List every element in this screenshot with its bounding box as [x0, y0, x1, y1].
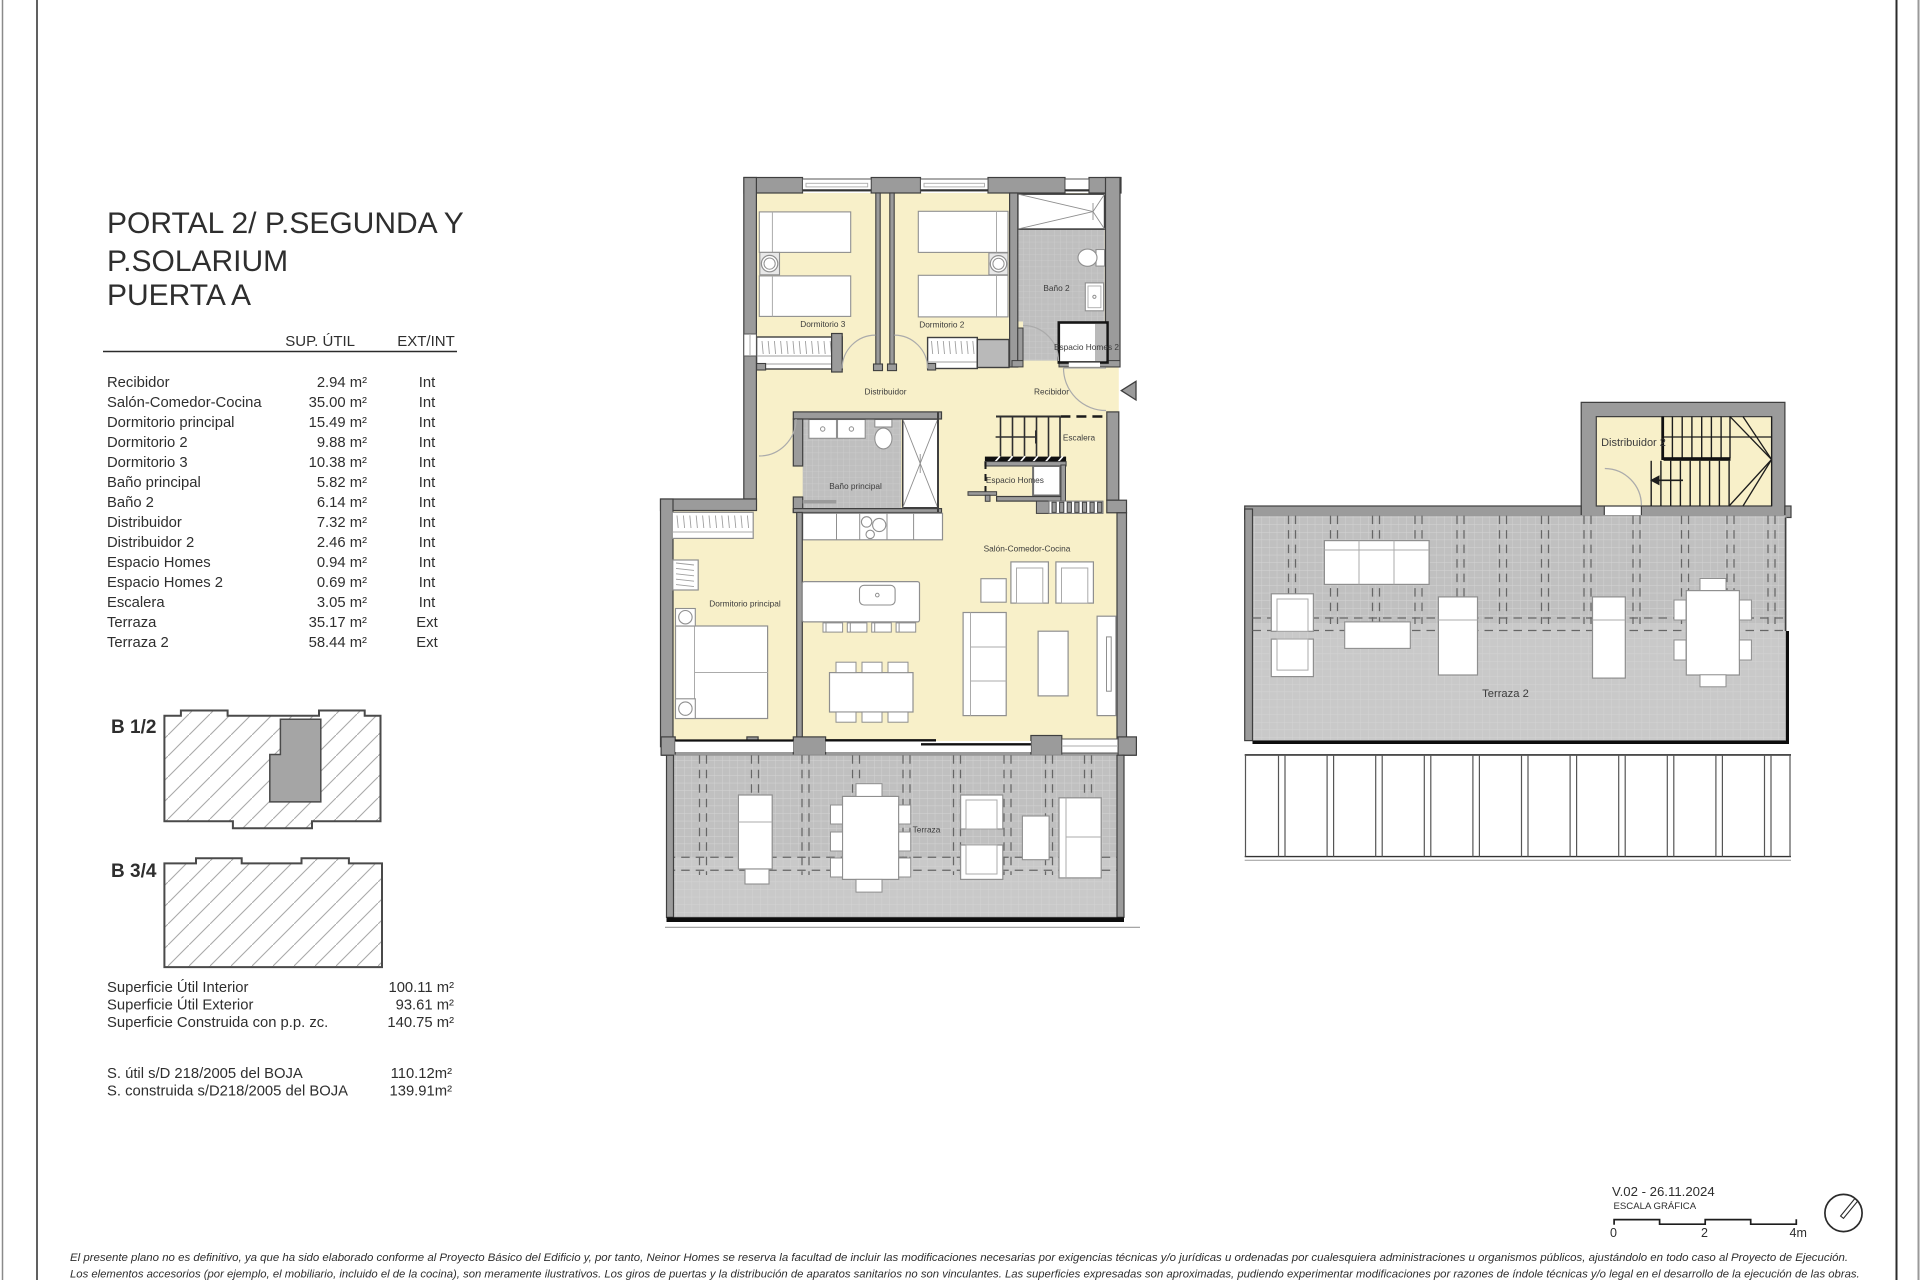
svg-text:Ext: Ext	[416, 615, 437, 631]
svg-text:Distribuidor 2: Distribuidor 2	[107, 535, 194, 551]
svg-text:10.38 m²: 10.38 m²	[309, 455, 367, 471]
svg-text:Escalera: Escalera	[1063, 433, 1096, 443]
svg-text:Int: Int	[419, 435, 435, 451]
svg-text:B 1/2: B 1/2	[111, 717, 156, 738]
svg-text:Salón-Comedor-Cocina: Salón-Comedor-Cocina	[984, 544, 1071, 554]
svg-text:139.91m²: 139.91m²	[389, 1083, 452, 1099]
svg-text:Los elementos accesorios (por: Los elementos accesorios (por ejemplo, e…	[70, 1269, 1860, 1280]
svg-text:100.11 m²: 100.11 m²	[388, 980, 454, 996]
svg-text:Superficie Construida con p.p.: Superficie Construida con p.p. zc.	[107, 1015, 328, 1031]
svg-text:93.61 m²: 93.61 m²	[396, 997, 454, 1013]
svg-text:Superficie Útil Exterior: Superficie Útil Exterior	[107, 996, 253, 1013]
svg-text:Baño principal: Baño principal	[829, 481, 882, 491]
svg-text:S. útil s/D 218/2005 del BOJA: S. útil s/D 218/2005 del BOJA	[107, 1066, 303, 1082]
svg-text:Terraza 2: Terraza 2	[107, 635, 169, 651]
svg-text:Dormitorio 3: Dormitorio 3	[800, 319, 846, 329]
svg-text:Int: Int	[419, 455, 435, 471]
svg-text:0.69 m²: 0.69 m²	[317, 575, 367, 591]
svg-text:Int: Int	[419, 475, 435, 491]
svg-text:Espacio Homes: Espacio Homes	[107, 555, 211, 571]
svg-text:ESCALA GRÁFICA: ESCALA GRÁFICA	[1614, 1201, 1697, 1212]
svg-text:4m: 4m	[1790, 1226, 1807, 1240]
svg-text:3.05 m²: 3.05 m²	[317, 595, 367, 611]
svg-text:Int: Int	[419, 535, 435, 551]
svg-text:Baño principal: Baño principal	[107, 475, 201, 491]
svg-text:S. construida s/D218/2005 del: S. construida s/D218/2005 del BOJA	[107, 1083, 348, 1099]
svg-text:Int: Int	[419, 575, 435, 591]
svg-text:7.32 m²: 7.32 m²	[317, 515, 367, 531]
svg-text:35.17 m²: 35.17 m²	[309, 615, 367, 631]
svg-text:Distribuidor: Distribuidor	[865, 387, 907, 397]
svg-text:110.12m²: 110.12m²	[391, 1066, 452, 1082]
svg-text:Int: Int	[419, 395, 435, 411]
svg-text:Int: Int	[419, 415, 435, 431]
svg-text:Dormitorio 2: Dormitorio 2	[107, 435, 188, 451]
svg-text:V.02 - 26.11.2024: V.02 - 26.11.2024	[1612, 1184, 1715, 1199]
svg-text:Dormitorio 2: Dormitorio 2	[919, 320, 965, 330]
svg-text:P.SOLARIUM: P.SOLARIUM	[107, 245, 288, 278]
svg-text:EXT/INT: EXT/INT	[397, 333, 455, 350]
svg-text:PORTAL 2/ P.SEGUNDA Y: PORTAL 2/ P.SEGUNDA Y	[107, 207, 464, 240]
svg-text:2: 2	[1701, 1226, 1708, 1240]
svg-text:Int: Int	[419, 595, 435, 611]
svg-text:Dormitorio principal: Dormitorio principal	[709, 599, 781, 609]
svg-text:B 3/4: B 3/4	[111, 861, 157, 882]
svg-text:Superficie Útil Interior: Superficie Útil Interior	[107, 979, 249, 996]
svg-text:Ext: Ext	[416, 635, 437, 651]
svg-text:Escalera: Escalera	[107, 595, 165, 611]
svg-text:Terraza 2: Terraza 2	[1482, 688, 1529, 700]
svg-text:Int: Int	[419, 515, 435, 531]
svg-text:El presente plano no es defini: El presente plano no es definitivo, ya q…	[70, 1252, 1848, 1264]
svg-text:Baño 2: Baño 2	[107, 495, 154, 511]
svg-text:Espacio Homes: Espacio Homes	[986, 475, 1044, 485]
svg-text:Recibidor: Recibidor	[107, 375, 170, 391]
svg-text:0.94 m²: 0.94 m²	[317, 555, 367, 571]
svg-text:Baño 2: Baño 2	[1043, 283, 1070, 293]
svg-text:Recibidor: Recibidor	[1034, 387, 1069, 397]
svg-text:6.14 m²: 6.14 m²	[317, 495, 367, 511]
svg-text:2.94 m²: 2.94 m²	[317, 375, 367, 391]
svg-text:Dormitorio principal: Dormitorio principal	[107, 415, 234, 431]
svg-text:15.49 m²: 15.49 m²	[309, 415, 367, 431]
svg-text:140.75 m²: 140.75 m²	[387, 1015, 454, 1031]
svg-text:Terraza: Terraza	[913, 825, 941, 835]
svg-text:Dormitorio 3: Dormitorio 3	[107, 455, 188, 471]
svg-text:PUERTA A: PUERTA A	[107, 279, 251, 312]
svg-text:Espacio Homes 2: Espacio Homes 2	[107, 575, 223, 591]
svg-text:2.46 m²: 2.46 m²	[317, 535, 367, 551]
svg-text:9.88 m²: 9.88 m²	[317, 435, 367, 451]
svg-text:Int: Int	[419, 555, 435, 571]
svg-text:5.82 m²: 5.82 m²	[317, 475, 367, 491]
svg-text:0: 0	[1610, 1226, 1617, 1240]
svg-text:Distribuidor: Distribuidor	[107, 515, 182, 531]
svg-text:Salón-Comedor-Cocina: Salón-Comedor-Cocina	[107, 395, 262, 411]
svg-text:Terraza: Terraza	[107, 615, 157, 631]
svg-text:Espacio Homes 2: Espacio Homes 2	[1054, 342, 1119, 352]
svg-text:35.00 m²: 35.00 m²	[309, 395, 367, 411]
svg-text:SUP. ÚTIL: SUP. ÚTIL	[285, 333, 355, 350]
svg-text:Int: Int	[419, 495, 435, 511]
svg-text:58.44 m²: 58.44 m²	[309, 635, 367, 651]
svg-text:Distribuidor 2: Distribuidor 2	[1601, 437, 1666, 449]
svg-text:Int: Int	[419, 375, 435, 391]
